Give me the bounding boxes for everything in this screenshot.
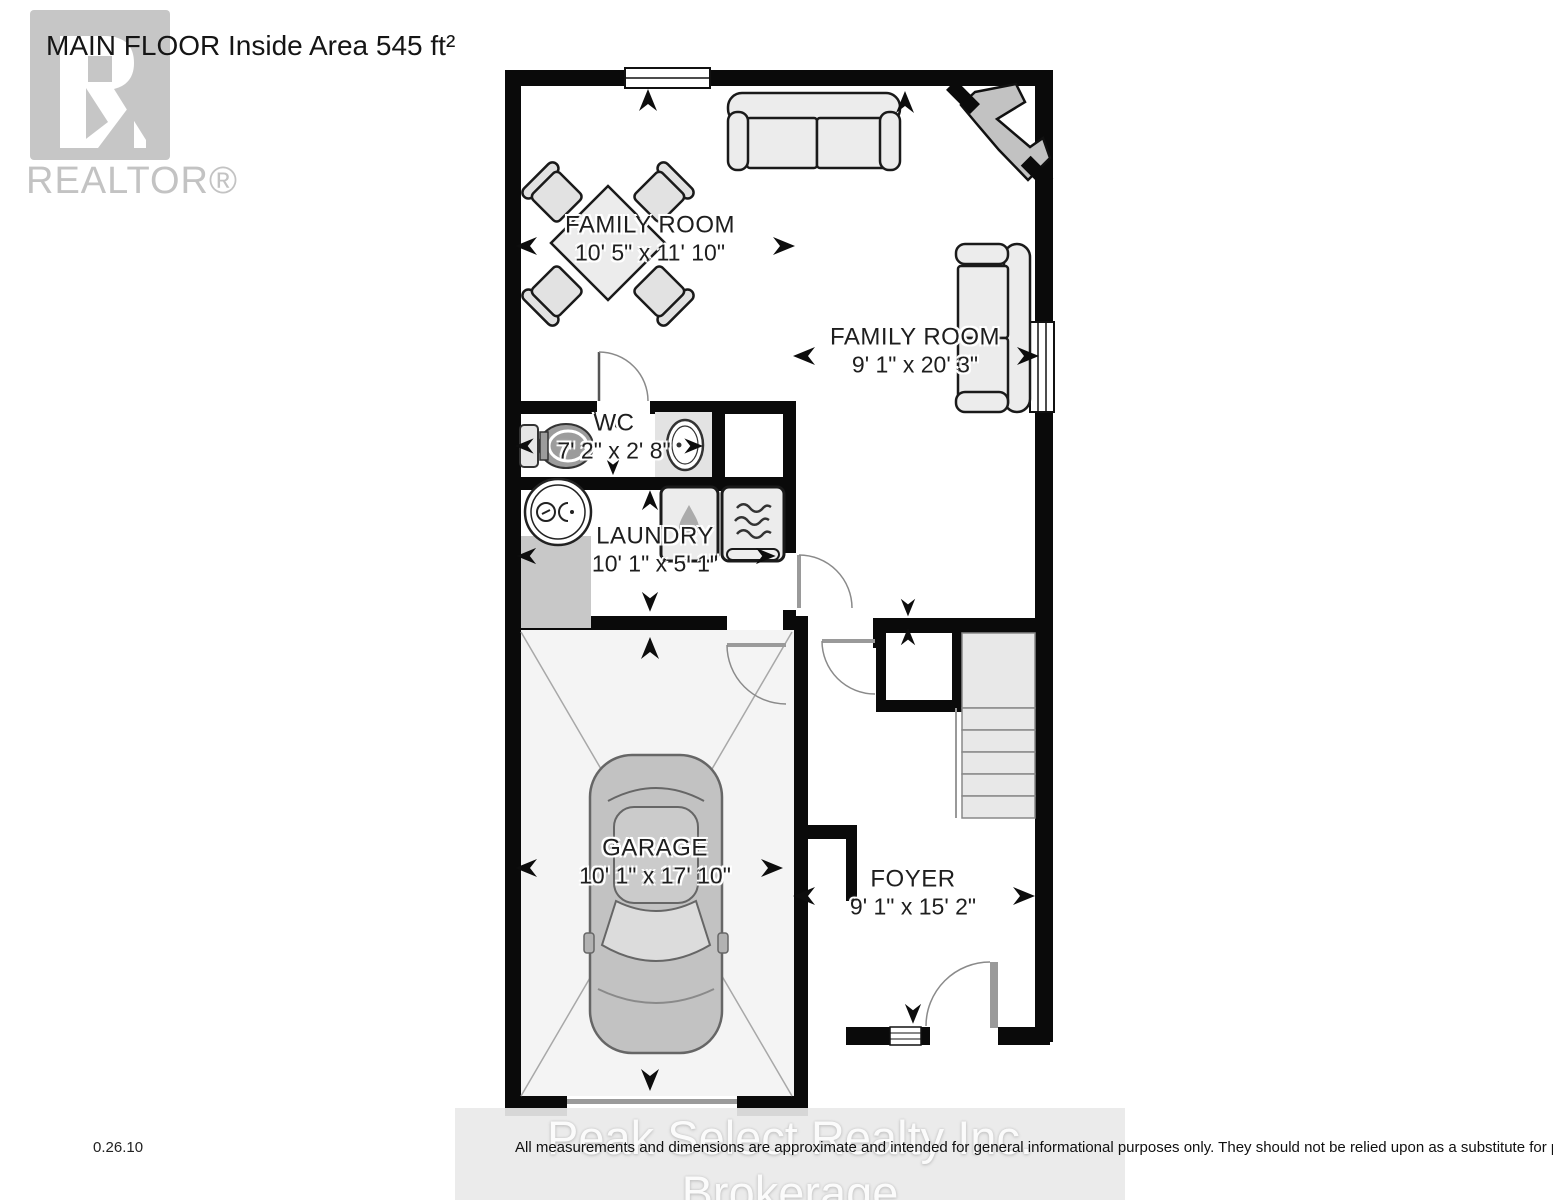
room-label-garage: GARAGE 10' 1" x 17' 10": [579, 835, 731, 890]
room-name: GARAGE: [579, 835, 731, 863]
door-swing-icon: [799, 555, 852, 608]
room-dimensions: 7' 2" x 2' 8": [557, 438, 670, 465]
furnace-icon: [525, 479, 591, 545]
footer-disclaimer: All measurements and dimensions are appr…: [515, 1139, 1553, 1156]
room-name: LAUNDRY: [592, 523, 718, 551]
room-dimensions: 10' 1" x 17' 10": [579, 863, 731, 890]
room-dimensions: 10' 1" x 5' 1": [592, 551, 718, 578]
room-label-laundry: LAUNDRY 10' 1" x 5' 1": [592, 523, 718, 578]
wall-left: [505, 70, 521, 1116]
wall-right-upper: [1035, 70, 1053, 322]
room-dimensions: 9' 1" x 20' 3": [830, 352, 1000, 379]
room-dimensions: 9' 1" x 15' 2": [850, 894, 976, 921]
car-icon: [584, 755, 728, 1053]
window-icon: [1030, 322, 1054, 412]
wall-closet-right: [952, 633, 962, 712]
dimension-arrow-icon: [639, 89, 657, 111]
window-icon: [625, 68, 710, 88]
door-swing-icon: [822, 641, 875, 694]
wall-familyroom-bottom: [873, 618, 1037, 633]
room-name: FAMILY ROOM: [565, 212, 735, 240]
room-name: FOYER: [850, 866, 976, 894]
room-name: WC: [557, 410, 670, 438]
wall-foyer-bottom-left: [846, 1027, 890, 1045]
dimension-arrow-icon: [1013, 887, 1035, 905]
dimension-arrow-icon: [642, 490, 658, 510]
door-swing-icon: [926, 962, 998, 1028]
room-label-family-room-1: FAMILY ROOM 10' 5" x 11' 10": [565, 212, 735, 267]
wall-right-lower: [1035, 412, 1053, 1042]
entry-step-icon: [890, 1027, 921, 1045]
stairs-icon: [956, 633, 1035, 818]
wall-foyer-nook-h: [808, 825, 857, 839]
door-swing-icon: [599, 352, 648, 401]
room-name: FAMILY ROOM: [830, 324, 1000, 352]
dimension-arrow-icon: [773, 237, 795, 255]
page-title: MAIN FLOOR Inside Area 545 ft²: [46, 30, 455, 62]
footer-version: 0.26.10: [93, 1139, 143, 1156]
wall-foyer-bottom-right: [998, 1027, 1050, 1045]
dimension-arrow-icon: [905, 1004, 921, 1024]
room-label-wc: WC 7' 2" x 2' 8": [557, 410, 670, 465]
dryer-icon: [722, 487, 784, 561]
wall-top-right: [710, 70, 1050, 86]
sofa-icon: [728, 93, 900, 170]
dimension-arrow-icon: [901, 599, 915, 617]
wall-top-left: [505, 70, 625, 86]
dimension-arrow-icon: [793, 347, 815, 365]
room-label-foyer: FOYER 9' 1" x 15' 2": [850, 866, 976, 921]
room-dimensions: 10' 5" x 11' 10": [565, 240, 735, 267]
room-label-family-room-2: FAMILY ROOM 9' 1" x 20' 3": [830, 324, 1000, 379]
chair-icon: [520, 262, 586, 328]
realtor-watermark-text: REALTOR®: [26, 160, 238, 203]
floor-plan-page: MAIN FLOOR Inside Area 545 ft² REALTOR® …: [0, 0, 1553, 1200]
wall-closet-bottom: [876, 700, 962, 712]
wall-garage-top-right: [787, 616, 808, 630]
wall-entry-jamb: [921, 1027, 930, 1045]
dimension-arrow-icon: [642, 592, 658, 612]
chair-icon: [630, 262, 696, 328]
wall-garage-right: [794, 630, 808, 1100]
